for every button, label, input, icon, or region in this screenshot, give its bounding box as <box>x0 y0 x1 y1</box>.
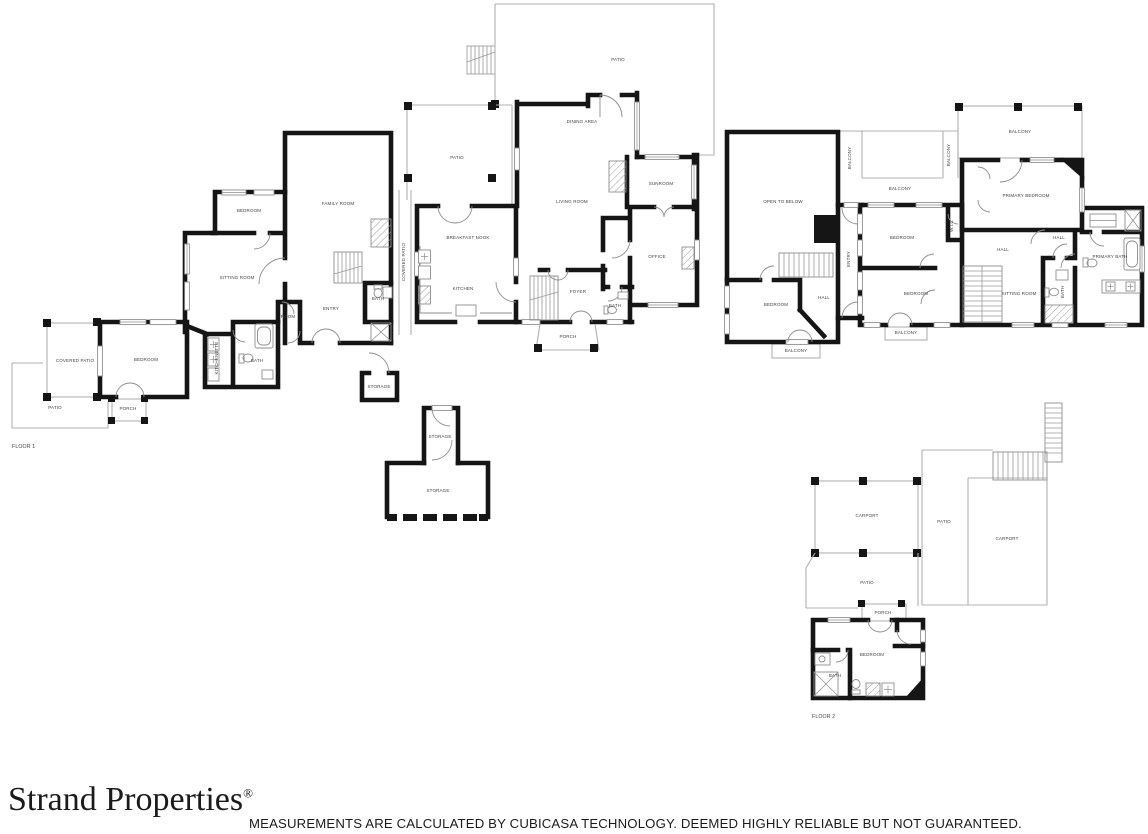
room-label: PATIO <box>860 580 874 585</box>
room-label: COVERED PATIO <box>401 243 406 282</box>
room-label: BREAKFAST NOOK <box>446 235 489 240</box>
shower-icon <box>371 323 391 341</box>
kitchenette-fixtures <box>866 683 894 696</box>
room-label: COVERED PATIO <box>56 358 95 363</box>
room-label: PATIO <box>937 519 951 524</box>
exterior-stairs-icon <box>993 403 1062 480</box>
room-label: DINING AREA <box>567 119 598 124</box>
room-label: STORAGE <box>368 384 391 389</box>
room-label: BEDROOM <box>890 235 914 240</box>
room-label: PORCH <box>559 334 576 339</box>
room-label: KITCHEN <box>453 286 474 291</box>
carport-area <box>806 403 1062 608</box>
room-label: SITTING ROOM <box>220 275 255 280</box>
floor-2-walls <box>727 132 1142 342</box>
room-labels-layer: PATIODINING AREAPATIOLIVING ROOMSUNROOMO… <box>48 57 1127 678</box>
room-label: PRIMARY BEDROOM <box>1002 193 1049 198</box>
room-label: W.I.C <box>949 220 954 232</box>
room-label: ENTRY <box>846 251 851 267</box>
hall-stairs-icon <box>963 266 1002 322</box>
room-label: HALL <box>1053 235 1065 240</box>
room-label: BALCONY <box>895 330 918 335</box>
room-label: PATIO <box>48 405 62 410</box>
room-label: BATH <box>1060 286 1065 298</box>
room-label: BALCONY <box>1009 129 1032 134</box>
room-label: OFFICE <box>648 254 665 259</box>
floor-plan-drawing: FLOOR 1 FLOOR 2 PATIODINING AREAPATIOLIV… <box>0 0 1148 770</box>
storage-sheds <box>362 353 488 521</box>
room-label: BEDROOM <box>237 208 261 213</box>
room-label: HALL <box>997 247 1009 252</box>
shower-icon <box>1125 210 1141 231</box>
fireplace-icon <box>682 247 694 269</box>
brand-logo-text: Strand Properties <box>8 781 243 818</box>
room-label: FAMILY ROOM <box>322 201 355 206</box>
room-label: OPEN TO BELOW <box>763 199 803 204</box>
room-label: BALCONY <box>889 186 912 191</box>
floor-2-plan <box>725 103 1145 358</box>
room-label: BALCONY <box>946 144 951 167</box>
floor-plan-page: FLOOR 1 FLOOR 2 PATIODINING AREAPATIOLIV… <box>0 0 1148 834</box>
floor-title: FLOOR 2 <box>812 714 835 720</box>
chimney-icon <box>814 215 838 243</box>
foyer-stairs-icon <box>530 276 558 320</box>
fireplace-icon <box>609 161 626 192</box>
room-label: KITCHENETTE <box>214 342 219 375</box>
room-label: FOYER <box>570 289 587 294</box>
room-label: BEDROOM <box>764 302 788 307</box>
floor-title: FLOOR 1 <box>12 444 35 450</box>
patio-stairs-icon <box>467 46 495 74</box>
entry-stairs-icon <box>334 252 362 283</box>
room-label: BEDROOM <box>134 357 158 362</box>
room-label: SUNROOM <box>649 181 674 186</box>
room-label: BALCONY <box>785 348 808 353</box>
room-label: BALCONY <box>847 147 852 170</box>
registered-trademark-icon: ® <box>243 786 253 801</box>
room-label: BATH <box>251 358 263 363</box>
room-label: LIVING ROOM <box>556 199 588 204</box>
room-label: PORCH <box>119 406 136 411</box>
guest-house-plan <box>813 600 925 698</box>
room-label: CARPORT <box>996 536 1019 541</box>
room-label: PATIO <box>611 57 625 62</box>
room-label: BATH <box>372 296 384 301</box>
brand-logo: Strand Properties® <box>8 781 253 819</box>
room-label: STORAGE <box>427 488 450 493</box>
disclaimer-text: MEASUREMENTS ARE CALCULATED BY CUBICASA … <box>249 816 1022 831</box>
kitchen-fixtures <box>419 246 513 316</box>
room-label: BATH <box>829 673 841 678</box>
bath-fixtures <box>1045 210 1141 323</box>
room-label: PRIMARY BATH <box>1092 254 1127 259</box>
room-label: ROOM <box>281 314 296 319</box>
room-label: BEDROOM <box>904 291 928 296</box>
room-label: STORAGE <box>429 434 452 439</box>
bath-fixtures <box>239 285 628 379</box>
fireplace-icon <box>371 219 391 247</box>
room-label: PATIO <box>450 155 464 160</box>
room-label: CARPORT <box>856 513 879 518</box>
open-below-stairs-icon <box>779 253 833 277</box>
room-label: PORCH <box>874 610 891 615</box>
room-label: BATH <box>609 303 621 308</box>
room-label: BEDROOM <box>860 652 884 657</box>
floor-1-plan <box>12 4 714 521</box>
room-label: SITTING ROOM <box>1002 291 1037 296</box>
room-label: HALL <box>818 295 830 300</box>
room-label: ENTRY <box>323 306 339 311</box>
